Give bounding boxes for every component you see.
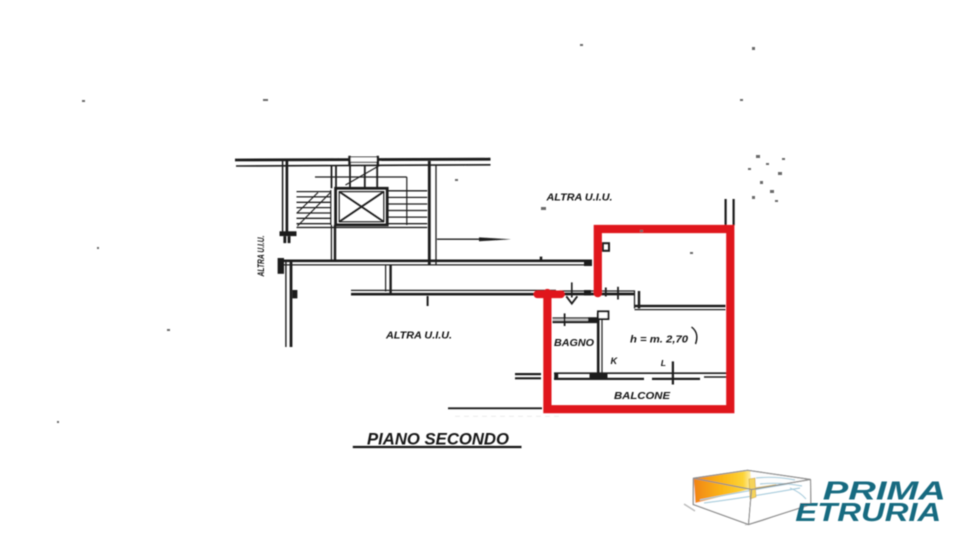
svg-text:L: L [661, 358, 666, 368]
svg-text:ETRURIA: ETRURIA [795, 497, 941, 527]
svg-text:ALTRA U.I.U.: ALTRA U.I.U. [385, 331, 452, 342]
svg-text:ALTRA U.I.U.: ALTRA U.I.U. [545, 193, 612, 204]
svg-text:ALTRA U.I.U.: ALTRA U.I.U. [255, 236, 266, 278]
svg-text:h = m. 2,70: h = m. 2,70 [630, 335, 688, 346]
svg-text:BALCONE: BALCONE [614, 391, 671, 402]
svg-text:PIANO SECONDO: PIANO SECONDO [367, 429, 509, 448]
svg-text:BAGNO: BAGNO [554, 338, 594, 349]
